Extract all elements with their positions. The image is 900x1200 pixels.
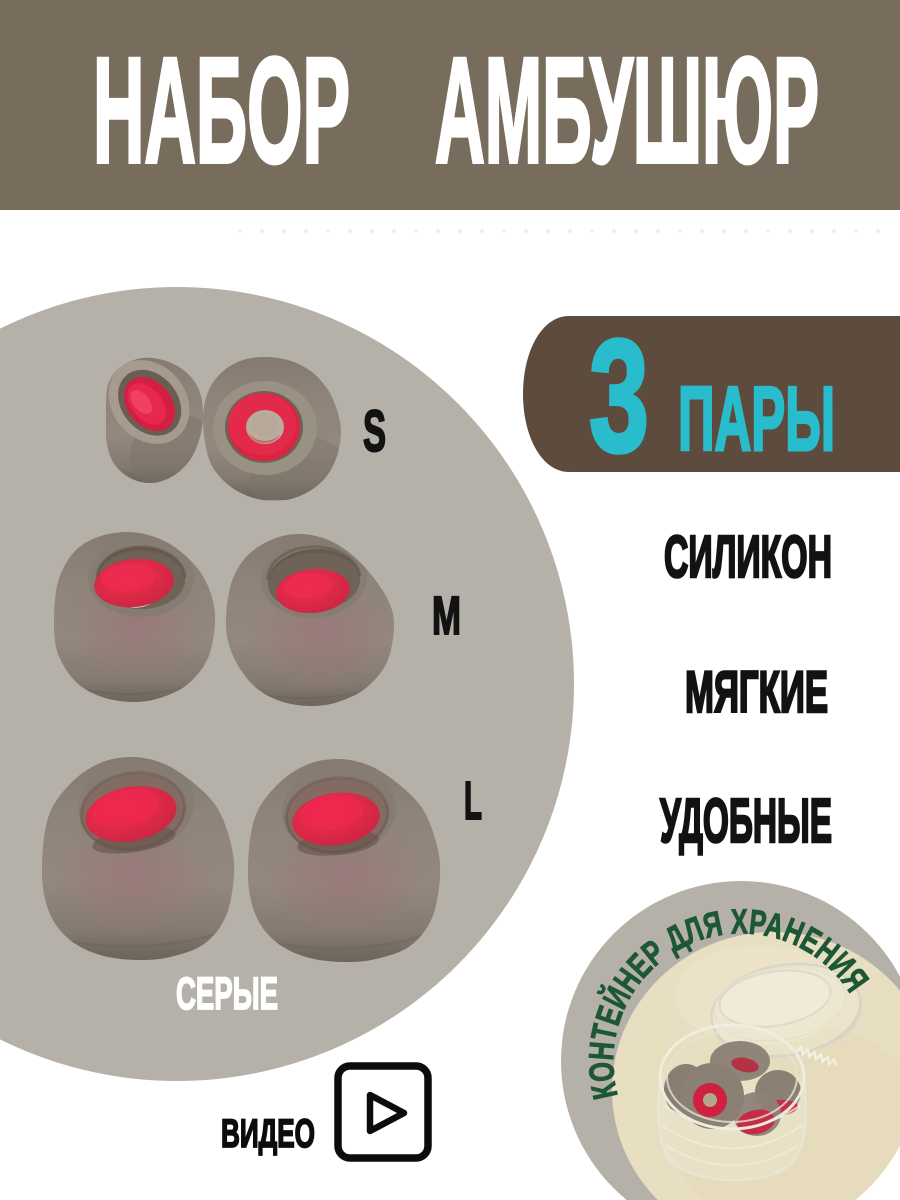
- svg-text:МЯГКИЕ: МЯГКИЕ: [685, 660, 828, 725]
- svg-text:УДОБНЫЕ: УДОБНЫЕ: [660, 787, 832, 856]
- svg-text:S: S: [363, 399, 386, 464]
- svg-text:ПАРЫ: ПАРЫ: [678, 369, 835, 470]
- svg-text:НАБОР: НАБОР: [93, 26, 350, 194]
- svg-text:3: 3: [589, 306, 649, 485]
- svg-text:ВИДЕО: ВИДЕО: [221, 1112, 315, 1156]
- svg-text:СЕРЫЕ: СЕРЫЕ: [176, 968, 278, 1019]
- svg-text:АМБУШЮР: АМБУШЮР: [435, 26, 819, 194]
- svg-text:M: M: [432, 586, 461, 646]
- svg-text:L: L: [464, 771, 482, 831]
- svg-text:СИЛИКОН: СИЛИКОН: [664, 524, 832, 590]
